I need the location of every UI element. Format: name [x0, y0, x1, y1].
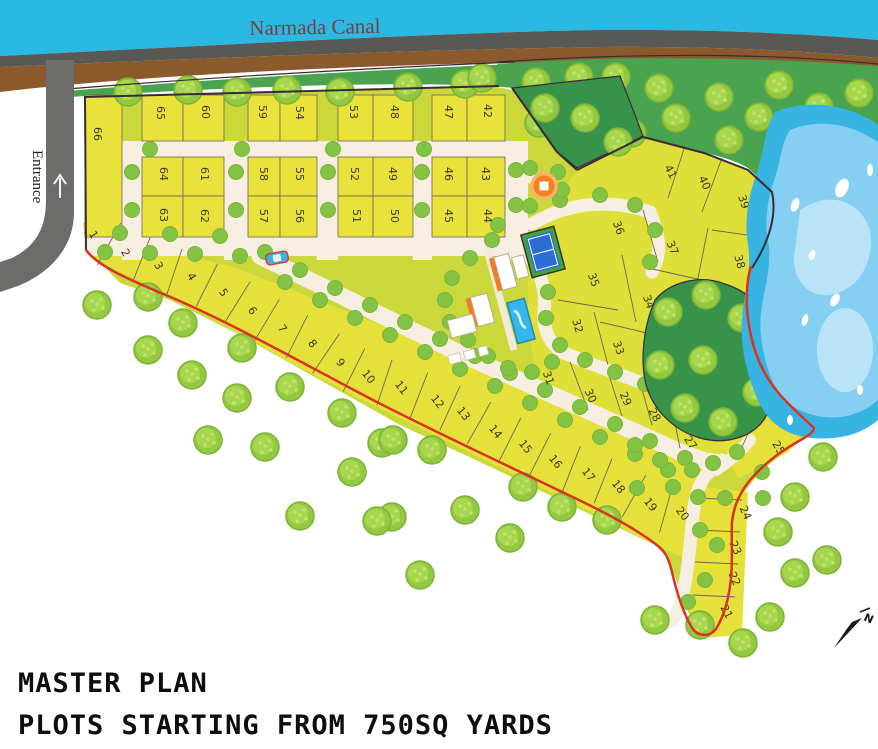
- page-title: MASTER PLAN: [18, 668, 208, 699]
- tree-icon: [710, 538, 725, 553]
- tree-icon: [593, 188, 608, 203]
- tree-icon: [453, 362, 468, 377]
- plot-label-65: 65: [154, 106, 167, 120]
- tree-icon: [539, 311, 554, 326]
- tree-icon: [273, 76, 301, 104]
- tree-icon: [730, 445, 745, 460]
- plot-label-60: 60: [199, 105, 212, 119]
- tree-icon: [213, 229, 228, 244]
- tree-icon: [438, 293, 453, 308]
- tree-icon: [691, 490, 706, 505]
- tree-icon: [415, 203, 430, 218]
- tree-icon: [363, 507, 391, 535]
- road: [224, 141, 248, 260]
- tree-icon: [705, 83, 733, 111]
- plot-label-64: 64: [157, 167, 170, 181]
- tree-icon: [398, 315, 413, 330]
- tree-icon: [463, 251, 478, 266]
- tree-icon: [764, 518, 792, 546]
- tree-icon: [233, 249, 248, 264]
- tree-icon: [523, 396, 538, 411]
- tree-icon: [718, 491, 733, 506]
- plot-label-61: 61: [198, 167, 211, 181]
- plot-label-49: 49: [386, 167, 399, 181]
- tree-icon: [163, 227, 178, 242]
- tree-icon: [578, 353, 593, 368]
- plot-cell: [85, 95, 122, 237]
- plot-label-44: 44: [481, 209, 494, 223]
- plot-cell: [467, 95, 505, 141]
- tree-icon: [692, 281, 720, 309]
- tree-icon: [406, 561, 434, 589]
- tree-icon: [276, 373, 304, 401]
- tree-icon: [169, 309, 197, 337]
- gazebo: [530, 172, 558, 200]
- tree-icon: [485, 233, 500, 248]
- tree-icon: [553, 338, 568, 353]
- tree-icon: [781, 559, 809, 587]
- tree-icon: [571, 104, 599, 132]
- tree-icon: [765, 71, 793, 99]
- plot-label-47: 47: [442, 105, 455, 119]
- road: [317, 141, 338, 260]
- tree-icon: [630, 481, 645, 496]
- tree-icon: [698, 573, 713, 588]
- tree-icon: [689, 346, 717, 374]
- tree-icon: [573, 400, 588, 415]
- tree-icon: [531, 94, 559, 122]
- tree-icon: [608, 365, 623, 380]
- tree-icon: [653, 453, 668, 468]
- tree-icon: [509, 198, 524, 213]
- tree-icon: [251, 433, 279, 461]
- tree-icon: [756, 603, 784, 631]
- plot-label-54: 54: [293, 106, 306, 120]
- tree-icon: [363, 298, 378, 313]
- tree-icon: [383, 328, 398, 343]
- plot-label-55: 55: [293, 167, 306, 181]
- tree-icon: [813, 546, 841, 574]
- tree-icon: [545, 355, 560, 370]
- tree-icon: [608, 417, 623, 432]
- road: [122, 141, 142, 260]
- tree-icon: [223, 384, 251, 412]
- tree-icon: [293, 263, 308, 278]
- tree-icon: [693, 523, 708, 538]
- tree-icon: [671, 394, 699, 422]
- plot-label-48: 48: [388, 105, 401, 119]
- tree-icon: [83, 291, 111, 319]
- tree-icon: [558, 413, 573, 428]
- tree-icon: [509, 163, 524, 178]
- tree-icon: [229, 165, 244, 180]
- tree-icon: [488, 379, 503, 394]
- tree-icon: [604, 128, 632, 156]
- tree-icon: [643, 434, 658, 449]
- tree-icon: [348, 311, 363, 326]
- tree-icon: [278, 275, 293, 290]
- tree-icon: [125, 203, 140, 218]
- tree-icon: [648, 223, 663, 238]
- tree-icon: [188, 247, 203, 262]
- tree-icon: [715, 126, 743, 154]
- tree-icon: [685, 463, 700, 478]
- plot-label-52: 52: [348, 167, 361, 181]
- tree-icon: [394, 73, 422, 101]
- tree-icon: [415, 165, 430, 180]
- canal-label: Narmada Canal: [249, 14, 381, 40]
- tree-icon: [645, 74, 673, 102]
- plot-label-46: 46: [442, 167, 455, 181]
- tree-icon: [286, 502, 314, 530]
- plot-label-42: 42: [481, 104, 494, 118]
- tree-icon: [646, 351, 674, 379]
- tree-icon: [326, 142, 341, 157]
- tree-icon: [98, 245, 113, 260]
- plot-label-53: 53: [347, 105, 360, 119]
- compass-north-icon: N: [834, 608, 875, 648]
- tree-icon: [445, 271, 460, 286]
- tree-icon: [496, 524, 524, 552]
- site-plan-svg: 6665605954534847426461585552494643636257…: [0, 0, 878, 662]
- tree-icon: [125, 165, 140, 180]
- tree-icon: [523, 199, 538, 214]
- tree-icon: [729, 629, 757, 657]
- master-plan-map: 6665605954534847426461585552494643636257…: [0, 0, 878, 662]
- tree-icon: [845, 79, 873, 107]
- tree-icon: [194, 426, 222, 454]
- tree-icon: [379, 426, 407, 454]
- tree-icon: [525, 365, 540, 380]
- tree-icon: [178, 361, 206, 389]
- tree-icon: [143, 246, 158, 261]
- tree-icon: [662, 104, 690, 132]
- plot-label-58: 58: [257, 167, 270, 181]
- lake: [742, 105, 878, 439]
- tree-icon: [756, 491, 771, 506]
- tree-icon: [666, 480, 681, 495]
- tree-icon: [328, 399, 356, 427]
- tree-icon: [809, 443, 837, 471]
- tree-icon: [433, 332, 448, 347]
- tree-icon: [501, 361, 516, 376]
- tree-icon: [328, 281, 343, 296]
- page-subtitle: PLOTS STARTING FROM 750SQ YARDS: [18, 710, 553, 741]
- plot-label-57: 57: [257, 209, 270, 223]
- plot-label-63: 63: [157, 208, 170, 222]
- tree-icon: [321, 203, 336, 218]
- tree-icon: [313, 293, 328, 308]
- plot-label-43: 43: [479, 167, 492, 181]
- tree-icon: [628, 438, 643, 453]
- tree-icon: [781, 483, 809, 511]
- svg-text:N: N: [862, 611, 876, 627]
- entrance-label: Entrance: [29, 150, 45, 204]
- plot-label-66: 66: [91, 127, 104, 141]
- tree-icon: [235, 142, 250, 157]
- tree-icon: [593, 430, 608, 445]
- tree-icon: [654, 298, 682, 326]
- tree-icon: [418, 436, 446, 464]
- plot-label-50: 50: [388, 209, 401, 223]
- tree-icon: [113, 226, 128, 241]
- tree-icon: [228, 334, 256, 362]
- tree-icon: [523, 161, 538, 176]
- tree-icon: [134, 336, 162, 364]
- tree-icon: [643, 255, 658, 270]
- tree-icon: [706, 456, 721, 471]
- tree-icon: [541, 285, 556, 300]
- tree-icon: [338, 458, 366, 486]
- tree-icon: [321, 165, 336, 180]
- plot-label-62: 62: [198, 209, 211, 223]
- tree-icon: [229, 203, 244, 218]
- tree-icon: [709, 408, 737, 436]
- tree-icon: [641, 606, 669, 634]
- tree-icon: [326, 78, 354, 106]
- tree-icon: [114, 78, 142, 106]
- tree-icon: [418, 345, 433, 360]
- plot-label-56: 56: [293, 209, 306, 223]
- tree-icon: [628, 198, 643, 213]
- tree-icon: [417, 142, 432, 157]
- plot-label-51: 51: [350, 209, 363, 223]
- tree-icon: [451, 496, 479, 524]
- plot-label-45: 45: [442, 209, 455, 223]
- road: [413, 141, 432, 260]
- plot-label-59: 59: [256, 105, 269, 119]
- tree-icon: [468, 64, 496, 92]
- tree-icon: [143, 142, 158, 157]
